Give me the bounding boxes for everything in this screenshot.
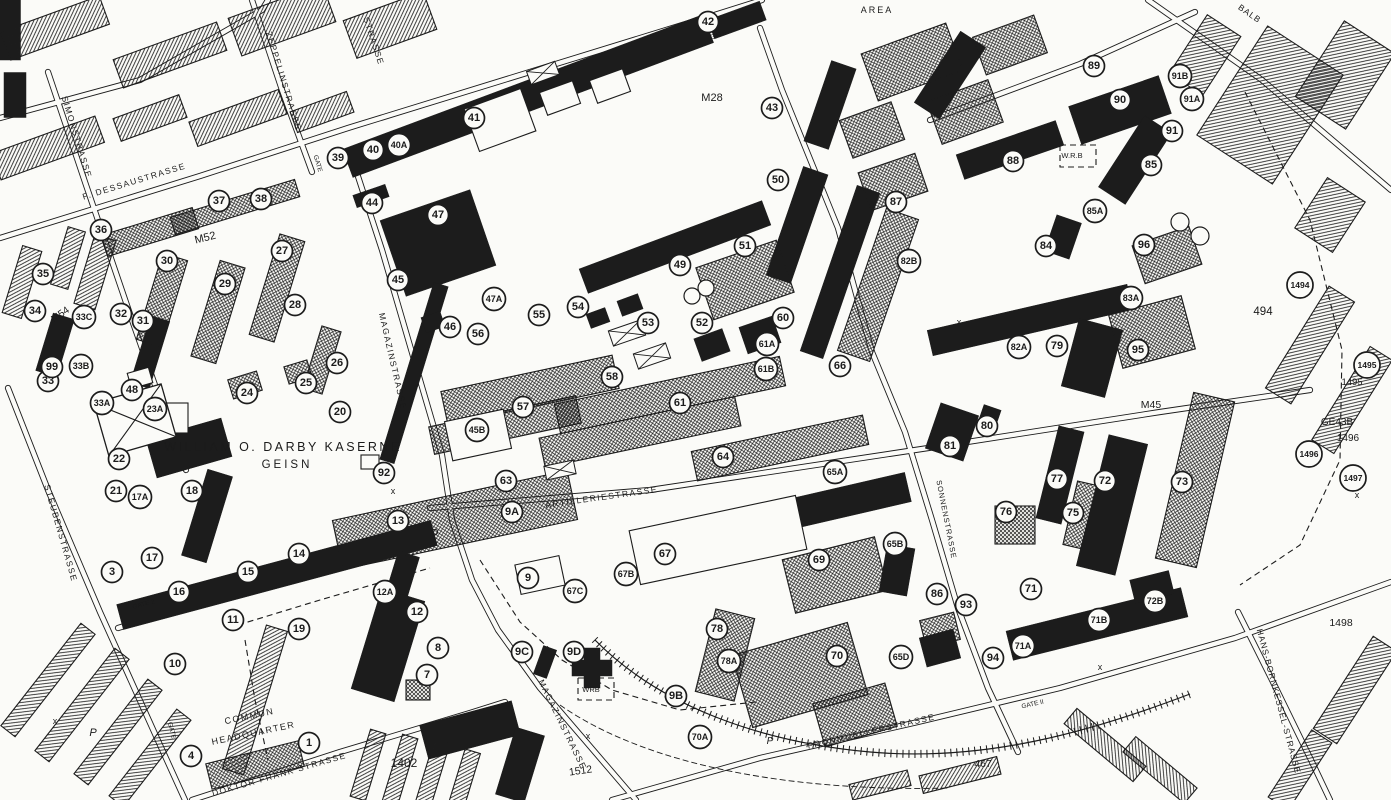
svg-text:1495: 1495 (1358, 360, 1377, 370)
map-label: x (391, 486, 396, 496)
building-marker: 26 (327, 353, 348, 374)
svg-text:14: 14 (293, 548, 306, 560)
map-label: M45 (1141, 399, 1162, 411)
building-marker: 40A (388, 134, 411, 157)
building-marker: 55 (529, 305, 550, 326)
building-marker: 9B (666, 686, 687, 707)
building-marker: 15 (238, 562, 259, 583)
svg-text:47: 47 (432, 209, 444, 221)
svg-text:93: 93 (960, 599, 972, 611)
building-marker: 1494 (1287, 272, 1313, 298)
svg-text:51: 51 (739, 240, 751, 252)
svg-text:81: 81 (944, 440, 956, 452)
building-marker: 9A (502, 502, 523, 523)
map-label: GEISN (262, 459, 313, 471)
svg-text:17: 17 (146, 552, 158, 564)
building-marker: 96 (1134, 235, 1155, 256)
building-marker: 67C (564, 580, 587, 603)
svg-text:28: 28 (289, 299, 301, 311)
svg-text:70: 70 (831, 650, 843, 662)
building-marker: 39 (328, 148, 349, 169)
building-marker: 9D (564, 642, 585, 663)
svg-text:89: 89 (1088, 60, 1100, 72)
svg-text:90: 90 (1114, 94, 1126, 106)
building-marker: 91 (1162, 121, 1183, 142)
building-marker: 1497 (1340, 465, 1366, 491)
map-label: 1495 (1341, 377, 1362, 388)
map-label: AREA (861, 5, 894, 15)
svg-text:44: 44 (366, 197, 379, 209)
svg-text:54: 54 (572, 301, 585, 313)
svg-text:20: 20 (334, 406, 346, 418)
building-marker: 35 (33, 264, 54, 285)
svg-text:30: 30 (161, 255, 173, 267)
svg-text:12: 12 (411, 606, 423, 618)
base-map: 1347899A9B9C9D10111212A131415161717A1819… (0, 0, 1391, 800)
svg-text:9: 9 (525, 572, 531, 584)
map-label: WRB (582, 685, 600, 694)
svg-text:1494: 1494 (1291, 280, 1310, 290)
svg-text:46: 46 (444, 321, 456, 333)
svg-text:9B: 9B (669, 690, 683, 702)
svg-text:55: 55 (533, 309, 545, 321)
building-marker: 24 (237, 383, 258, 404)
svg-text:49: 49 (674, 259, 686, 271)
building-marker: 12 (407, 602, 428, 623)
svg-text:60: 60 (777, 312, 789, 324)
building-marker: 61A (756, 333, 779, 356)
svg-text:16: 16 (173, 586, 185, 598)
building-marker: 33B (70, 355, 93, 378)
svg-text:47A: 47A (486, 294, 503, 304)
building-marker: 77 (1047, 469, 1068, 490)
building-marker: 46 (440, 317, 461, 338)
svg-text:67C: 67C (567, 586, 584, 596)
building-marker: 1495 (1354, 352, 1380, 378)
building-marker: 61B (755, 358, 778, 381)
building-marker: 95 (1128, 340, 1149, 361)
map-label: x (957, 317, 962, 327)
svg-text:56: 56 (472, 328, 484, 340)
svg-text:86: 86 (931, 588, 943, 600)
svg-text:31: 31 (137, 315, 149, 327)
building-marker: 63 (496, 471, 517, 492)
building-marker: 29 (215, 274, 236, 295)
building-marker: 73 (1172, 472, 1193, 493)
svg-text:72B: 72B (1147, 596, 1164, 606)
building-marker: 9C (512, 642, 533, 663)
building-marker: 76 (996, 502, 1017, 523)
svg-text:96: 96 (1138, 239, 1150, 251)
building-marker: 93 (956, 595, 977, 616)
svg-text:87: 87 (890, 196, 902, 208)
svg-text:40A: 40A (391, 140, 408, 150)
svg-text:69: 69 (813, 554, 825, 566)
building-marker: 85A (1084, 200, 1107, 223)
map-label: 467 (974, 758, 992, 770)
building-marker: 78A (718, 650, 741, 673)
building-marker: 19 (289, 619, 310, 640)
building-marker: 92 (374, 463, 395, 484)
svg-text:36: 36 (95, 224, 107, 236)
building-marker: 65A (824, 461, 847, 484)
building-marker: 48 (122, 380, 143, 401)
building-marker: 45 (388, 270, 409, 291)
svg-text:67: 67 (659, 548, 671, 560)
svg-text:57: 57 (517, 401, 529, 413)
building-marker: 31 (133, 311, 154, 332)
building-marker: 69 (809, 550, 830, 571)
building-marker: 70 (827, 646, 848, 667)
building-marker: 36 (91, 220, 112, 241)
building-marker: 49 (670, 255, 691, 276)
svg-text:18: 18 (186, 485, 198, 497)
map-label: x (586, 731, 591, 741)
building-marker: 12A (374, 581, 397, 604)
map-label: x (53, 716, 58, 726)
building-marker: 21 (106, 481, 127, 502)
building-marker: 1 (299, 733, 320, 754)
svg-text:82B: 82B (901, 256, 918, 266)
building-marker: 85 (1141, 155, 1162, 176)
building-marker: 7 (417, 665, 438, 686)
building-marker: 18 (182, 481, 203, 502)
building-marker: 81 (940, 436, 961, 457)
svg-text:11: 11 (227, 614, 239, 626)
svg-text:61B: 61B (758, 364, 775, 374)
map-label: WILLIAM O. DARBY KASERNE (164, 440, 402, 454)
building-marker: 42 (698, 12, 719, 33)
building-marker: 66 (830, 356, 851, 377)
building-marker: 65B (884, 533, 907, 556)
svg-text:23A: 23A (147, 404, 164, 414)
svg-text:1: 1 (306, 737, 312, 749)
building-marker: 60 (773, 308, 794, 329)
building-marker: 72B (1144, 590, 1167, 613)
tank-symbol (698, 280, 714, 296)
building-marker: 38 (251, 189, 272, 210)
svg-text:32: 32 (115, 308, 127, 320)
building-marker: 54 (568, 297, 589, 318)
building-marker: 17 (142, 548, 163, 569)
building-marker: 51 (735, 236, 756, 257)
svg-text:10: 10 (169, 658, 181, 670)
building-marker: 71B (1088, 609, 1111, 632)
svg-text:94: 94 (987, 652, 1000, 664)
map-label: W.R.B (1061, 151, 1082, 160)
building-marker: 94 (983, 648, 1004, 669)
map-canvas: 1347899A9B9C9D10111212A131415161717A1819… (0, 0, 1391, 800)
svg-text:88: 88 (1007, 155, 1019, 167)
svg-text:53: 53 (642, 317, 654, 329)
svg-text:45: 45 (392, 274, 404, 286)
svg-text:71B: 71B (1091, 615, 1108, 625)
svg-text:66: 66 (834, 360, 846, 372)
svg-text:8: 8 (435, 642, 441, 654)
building-marker: 13 (388, 511, 409, 532)
map-label: M28 (701, 92, 722, 104)
svg-text:72: 72 (1099, 475, 1111, 487)
svg-text:48: 48 (126, 384, 138, 396)
building-marker: 27 (272, 241, 293, 262)
svg-text:73: 73 (1176, 476, 1188, 488)
svg-text:1496: 1496 (1300, 449, 1319, 459)
svg-text:43: 43 (766, 102, 778, 114)
building-marker: 80 (977, 416, 998, 437)
building-marker: 99 (42, 357, 63, 378)
building-marker: 4 (181, 746, 202, 767)
svg-text:83A: 83A (1123, 293, 1140, 303)
svg-text:19: 19 (293, 623, 305, 635)
building-marker: 67B (615, 563, 638, 586)
building-marker: 78 (707, 619, 728, 640)
building-marker: 40 (363, 140, 384, 161)
building-marker: 79 (1047, 336, 1068, 357)
building-marker: 86 (927, 584, 948, 605)
svg-text:12A: 12A (377, 587, 394, 597)
building-marker: 33A (91, 392, 114, 415)
svg-text:85A: 85A (1087, 206, 1104, 216)
building-marker: 90 (1110, 90, 1131, 111)
building-marker: 22 (109, 449, 130, 470)
building-marker: 89 (1084, 56, 1105, 77)
svg-text:1497: 1497 (1344, 473, 1363, 483)
building-marker: 61 (670, 393, 691, 414)
svg-text:24: 24 (241, 387, 254, 399)
svg-text:21: 21 (110, 485, 122, 497)
svg-text:52: 52 (696, 317, 708, 329)
building-marker: 83A (1120, 287, 1143, 310)
building-marker: 64 (713, 447, 734, 468)
svg-text:67B: 67B (618, 569, 635, 579)
svg-text:34: 34 (29, 305, 42, 317)
svg-text:9C: 9C (515, 646, 529, 658)
svg-text:4: 4 (188, 750, 195, 762)
svg-text:29: 29 (219, 278, 231, 290)
building-marker: 88 (1003, 151, 1024, 172)
map-label: 1402 (391, 756, 418, 770)
svg-text:15: 15 (242, 566, 254, 578)
building-marker: 10 (165, 654, 186, 675)
svg-text:37: 37 (213, 195, 225, 207)
svg-text:80: 80 (981, 420, 993, 432)
building-marker: 23A (144, 398, 167, 421)
svg-text:27: 27 (276, 245, 288, 257)
building-marker: 70A (689, 726, 712, 749)
building-marker: 33C (73, 306, 96, 329)
building-marker: 25 (296, 373, 317, 394)
building-marker: 11 (223, 610, 244, 631)
building-marker: 34 (25, 301, 46, 322)
svg-text:42: 42 (702, 16, 714, 28)
map-label: 494 (1253, 306, 1273, 318)
svg-text:79: 79 (1051, 340, 1063, 352)
building-marker: 67 (655, 544, 676, 565)
svg-text:58: 58 (606, 371, 618, 383)
svg-text:64: 64 (717, 451, 730, 463)
svg-text:76: 76 (1000, 506, 1012, 518)
svg-text:65D: 65D (893, 652, 910, 662)
svg-text:84: 84 (1040, 240, 1053, 252)
building-marker: 30 (157, 251, 178, 272)
building-marker: 20 (330, 402, 351, 423)
building-marker: 71A (1012, 635, 1035, 658)
building-marker: 56 (468, 324, 489, 345)
svg-text:38: 38 (255, 193, 267, 205)
building-marker: 3 (102, 562, 123, 583)
building-marker: 44 (362, 193, 383, 214)
svg-text:85: 85 (1145, 159, 1157, 171)
svg-text:75: 75 (1067, 507, 1079, 519)
building-marker: 50 (768, 170, 789, 191)
building-marker: 45B (466, 419, 489, 442)
building-solid (4, 73, 26, 118)
svg-text:33A: 33A (94, 398, 111, 408)
svg-text:33C: 33C (76, 312, 93, 322)
svg-text:71A: 71A (1015, 641, 1032, 651)
tank-symbol (684, 288, 700, 304)
svg-text:92: 92 (378, 467, 390, 479)
svg-text:35: 35 (37, 268, 49, 280)
svg-text:61A: 61A (759, 339, 776, 349)
map-label: 1496 (1337, 433, 1360, 444)
svg-text:22: 22 (113, 453, 125, 465)
svg-text:82A: 82A (1011, 342, 1028, 352)
building-marker: 87 (886, 192, 907, 213)
building-marker: 8 (428, 638, 449, 659)
svg-text:78A: 78A (721, 656, 738, 666)
svg-text:50: 50 (772, 174, 784, 186)
building-marker: 82B (898, 250, 921, 273)
svg-text:33B: 33B (73, 361, 90, 371)
svg-text:91: 91 (1166, 125, 1178, 137)
svg-text:9D: 9D (567, 646, 581, 658)
svg-text:40: 40 (367, 144, 379, 156)
building-marker: 57 (513, 397, 534, 418)
building-marker: 1496 (1296, 441, 1322, 467)
building-marker: 16 (169, 582, 190, 603)
svg-text:13: 13 (392, 515, 404, 527)
building-marker: 9 (518, 568, 539, 589)
svg-text:26: 26 (331, 357, 343, 369)
svg-text:77: 77 (1051, 473, 1063, 485)
map-label: P (767, 736, 774, 747)
svg-text:70A: 70A (692, 732, 709, 742)
building-marker: 75 (1063, 503, 1084, 524)
svg-text:39: 39 (332, 152, 344, 164)
svg-text:61: 61 (674, 397, 686, 409)
svg-text:45B: 45B (469, 425, 486, 435)
building-marker: 28 (285, 295, 306, 316)
svg-text:91B: 91B (1172, 71, 1189, 81)
map-label: x (1355, 490, 1360, 500)
svg-text:9A: 9A (505, 506, 519, 518)
building-marker: 32 (111, 304, 132, 325)
building-marker: 65D (890, 646, 913, 669)
svg-text:78: 78 (711, 623, 723, 635)
building-marker: 72 (1095, 471, 1116, 492)
svg-text:91A: 91A (1184, 94, 1201, 104)
map-label: 1498 (1329, 617, 1353, 629)
svg-text:7: 7 (424, 669, 430, 681)
building-marker: 91B (1169, 65, 1192, 88)
building-marker: 47 (428, 205, 449, 226)
svg-text:71: 71 (1025, 583, 1037, 595)
building-marker: 82A (1008, 336, 1031, 359)
map-label: GE43B (1321, 417, 1354, 428)
map-label: x (1098, 662, 1103, 672)
svg-text:65B: 65B (887, 539, 904, 549)
building-marker: 84 (1036, 236, 1057, 257)
building-marker: 71 (1021, 579, 1042, 600)
building-marker: 43 (762, 98, 783, 119)
building-marker: 58 (602, 367, 623, 388)
building-marker: 14 (289, 544, 310, 565)
svg-text:65A: 65A (827, 467, 844, 477)
tank-symbol (1171, 213, 1189, 231)
building-marker: 52 (692, 313, 713, 334)
building-marker: 53 (638, 313, 659, 334)
svg-text:99: 99 (46, 361, 58, 373)
tank-symbol (1191, 227, 1209, 245)
building-marker: 47A (483, 288, 506, 311)
map-label: P (89, 727, 97, 739)
building-marker: 37 (209, 191, 230, 212)
svg-text:17A: 17A (132, 492, 149, 502)
svg-text:3: 3 (109, 566, 115, 578)
svg-text:41: 41 (468, 112, 480, 124)
svg-text:95: 95 (1132, 344, 1144, 356)
building-marker: 91A (1181, 88, 1204, 111)
building-marker: 41 (464, 108, 485, 129)
svg-text:25: 25 (300, 377, 312, 389)
building-marker: 17A (129, 486, 152, 509)
svg-text:63: 63 (500, 475, 512, 487)
